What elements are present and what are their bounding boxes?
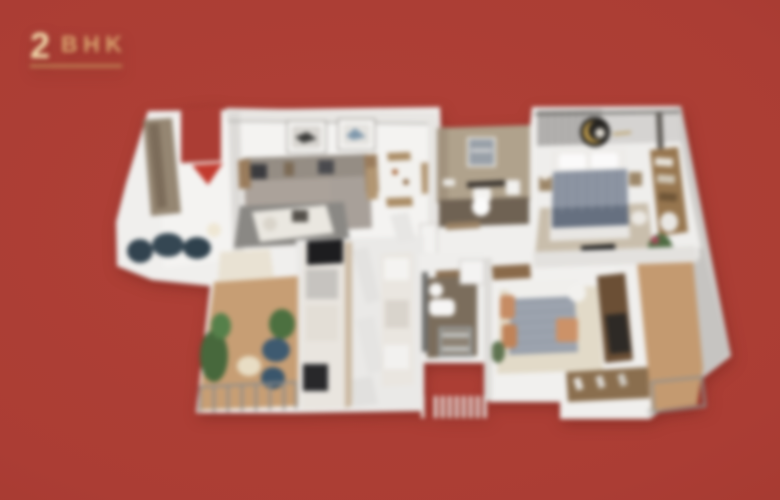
svg-text:BHK: BHK [61,31,127,57]
svg-text:2: 2 [30,25,50,66]
